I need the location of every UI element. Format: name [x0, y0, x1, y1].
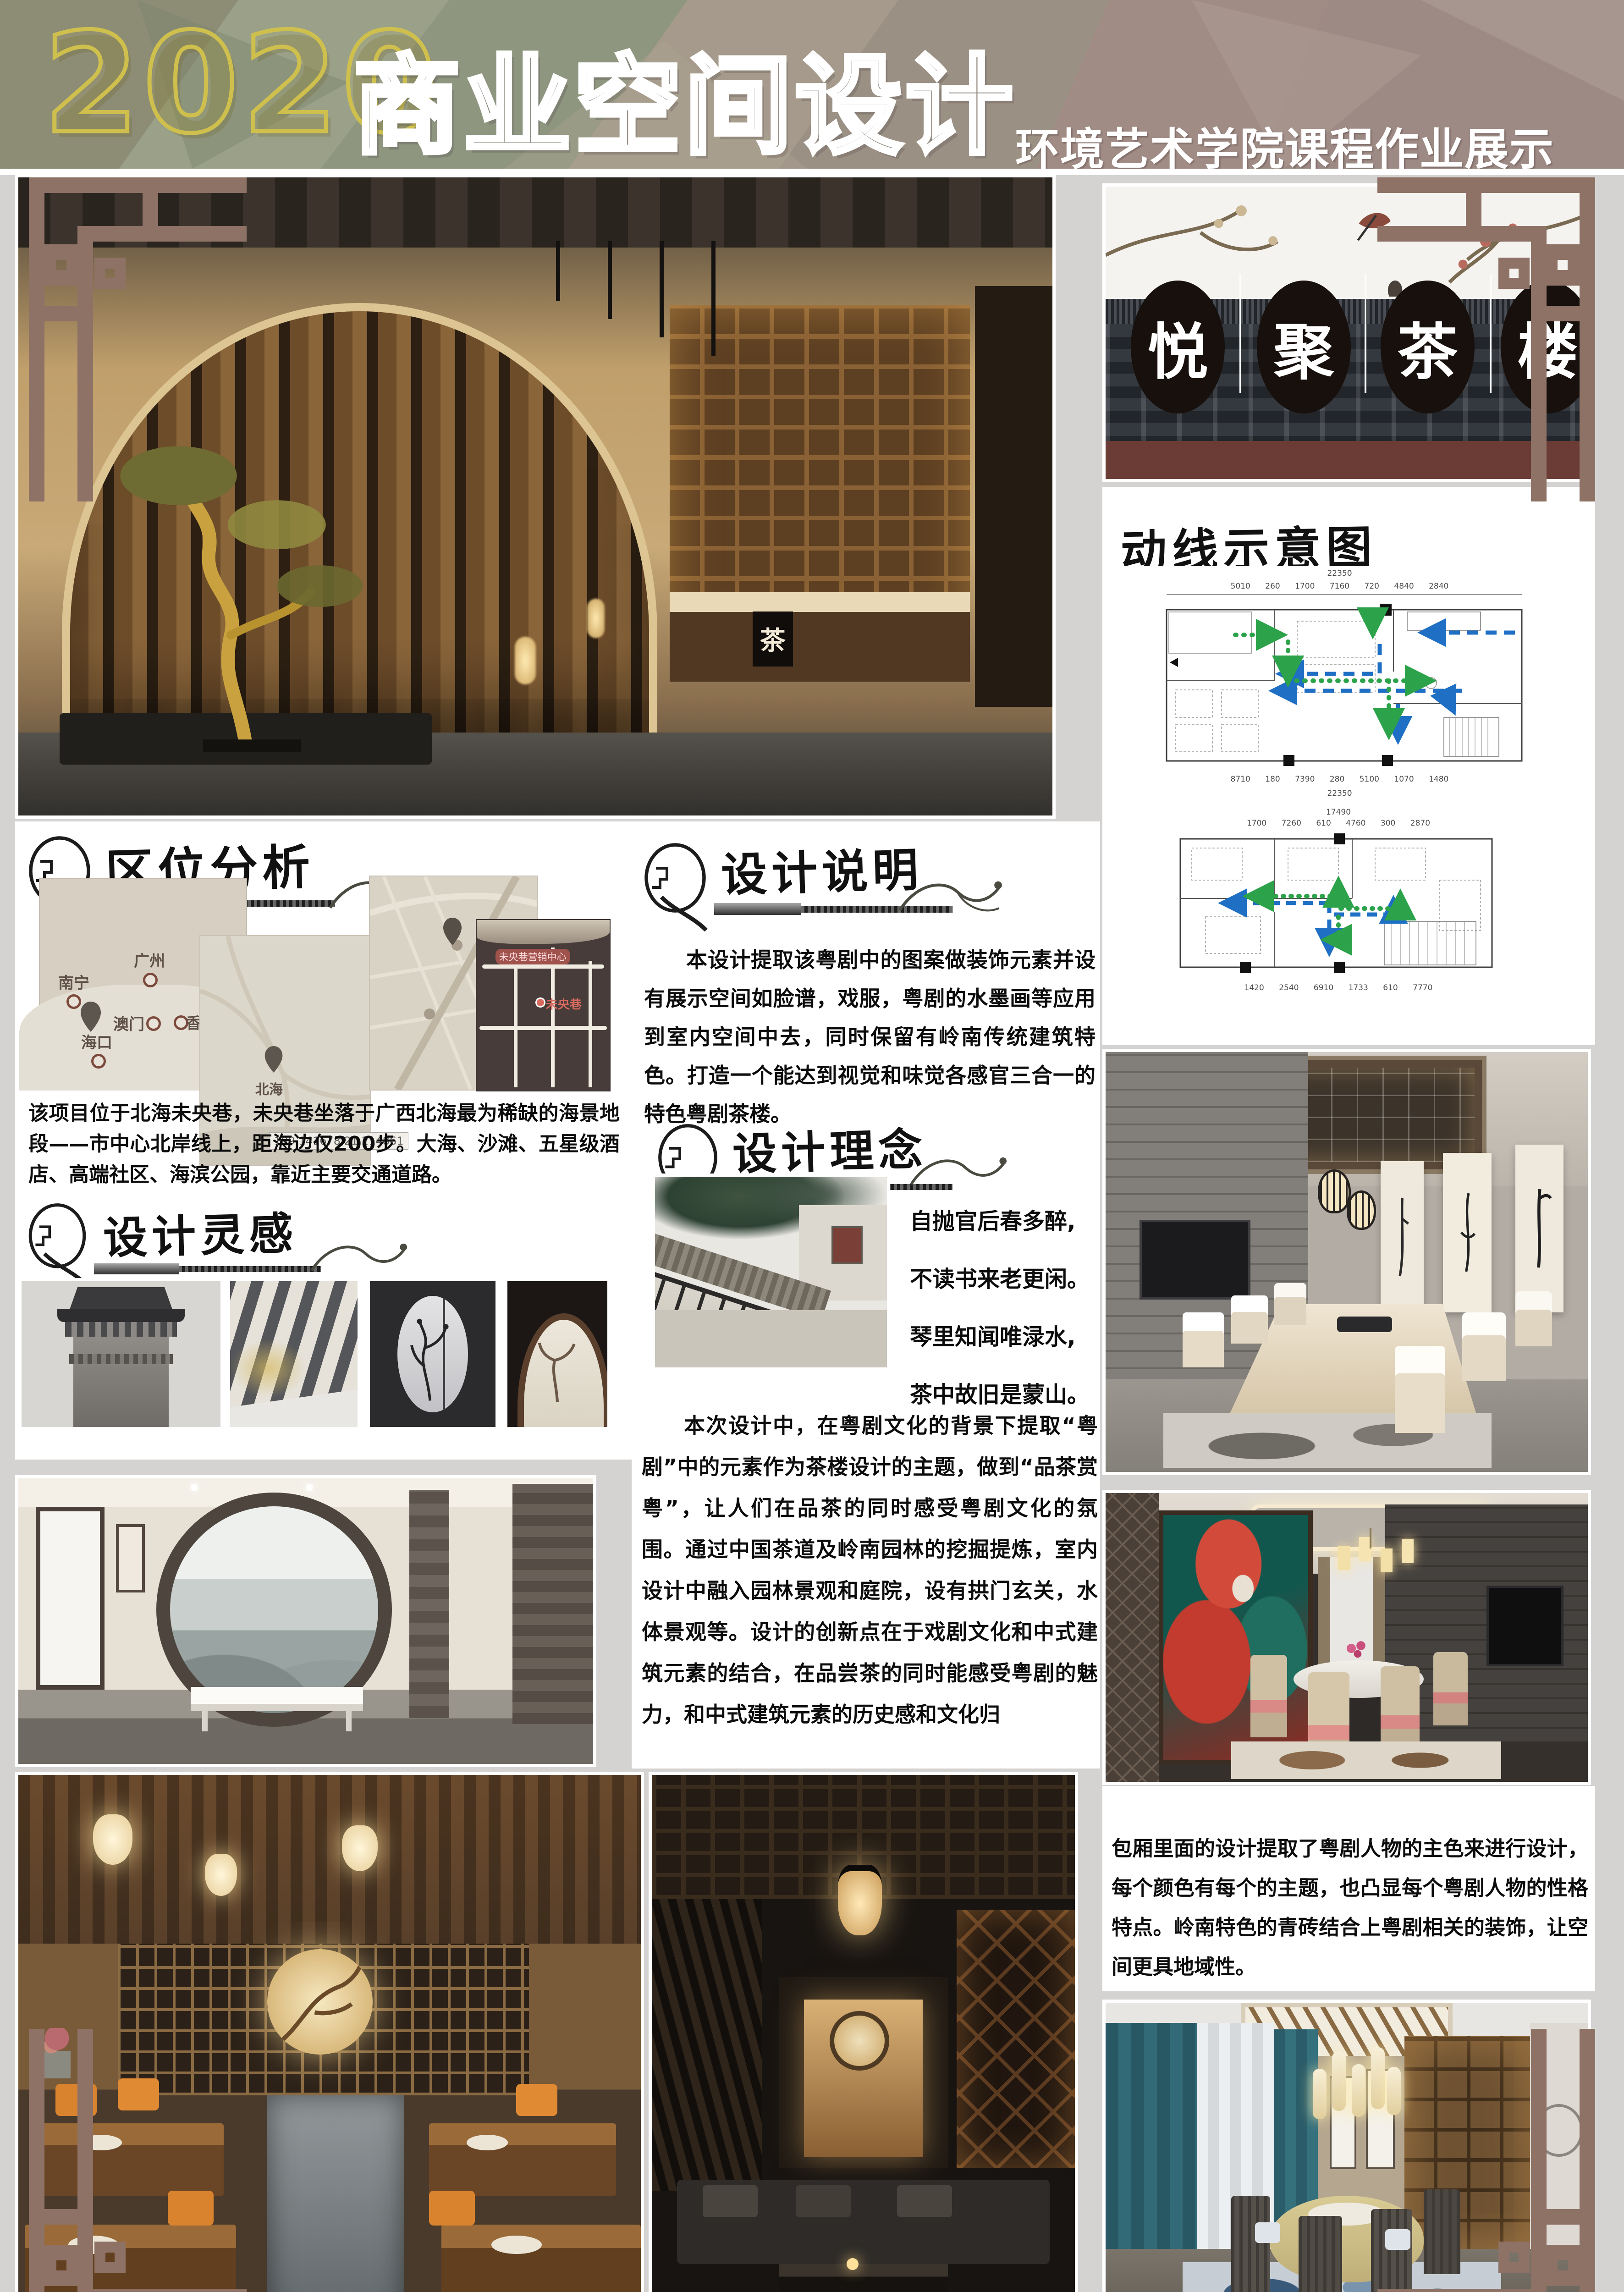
dining-table: [429, 2123, 616, 2196]
chair: [1515, 1291, 1552, 1346]
moon-window-glow: [267, 1949, 373, 2055]
dining-table: [441, 2225, 641, 2292]
hanging-lantern: [93, 1814, 132, 1865]
section-title: 设计说明: [720, 832, 924, 904]
city-label: 南宁: [58, 970, 89, 993]
counter-tea-sign: 茶: [753, 612, 793, 667]
sign-separator: [1239, 274, 1241, 393]
plan1-drawing: [1123, 566, 1556, 802]
hanging-lantern: [838, 1865, 882, 1935]
poem-line: 自抛官后春多醉,: [910, 1203, 1093, 1236]
city-label: 澳门: [113, 1012, 144, 1034]
chandelier: [1327, 1528, 1433, 1574]
road-h: [482, 964, 605, 969]
city-dot: [143, 973, 158, 987]
stair-wall: [655, 1310, 887, 1367]
garden-stairs-photo: [652, 1174, 890, 1371]
side-doorway: [975, 286, 1052, 707]
concept-body: 本次设计中，在粤剧文化的背景下提取“粤剧”中的元素作为茶楼设计的主题，做到“品茶…: [642, 1405, 1098, 1735]
round-window-ring: [830, 2011, 889, 2071]
section-title: 设计理念: [732, 1113, 927, 1182]
tea-set: [1337, 1317, 1392, 1332]
page-subtitle: 环境艺术学院课程作业展示: [1015, 114, 1554, 177]
marker-label: 未央巷营销中心: [495, 949, 570, 964]
poster: 2020 商业空间设计 环境艺术学院课程作业展示 茶: [0, 0, 1624, 2292]
marker-label: 未央巷: [546, 995, 582, 1012]
wall-frame: [116, 1524, 145, 1593]
gable-window: [831, 1226, 863, 1264]
chair: [1395, 1346, 1445, 1433]
sign-char: 悦: [1148, 303, 1208, 391]
moon-arch-room-photo: [15, 1475, 596, 1767]
spindle-chair: [1231, 2196, 1270, 2292]
tv-screen: [1140, 1220, 1250, 1300]
plan1-bottom-dims: 8710 180 7390 280 5100 1070 1480: [1123, 775, 1556, 784]
chair: [1274, 1283, 1306, 1325]
moon-lattice-icon: [25, 1202, 89, 1286]
city-label: 北海: [255, 1078, 283, 1098]
inspiration-gate-photo: [18, 1278, 224, 1430]
inspiration-oval-window-photo: [367, 1278, 499, 1430]
marker-dot: [535, 997, 545, 1008]
flourish-icon: [309, 1239, 408, 1284]
ink-stroke: [1390, 1174, 1415, 1300]
sign-separator: [1365, 274, 1366, 393]
map-pin-icon: [80, 1002, 101, 1032]
section-bar: [714, 903, 801, 915]
city-label: 广州: [134, 948, 165, 971]
corridor-photo: [649, 1772, 1078, 2292]
ink-stroke: [1528, 1157, 1552, 1300]
tea-character: 茶: [760, 620, 786, 657]
blossom-tint: [230, 1339, 307, 1398]
ink-stroke: [1455, 1165, 1480, 1300]
brick-wall-right: [512, 1484, 593, 1724]
poem-line: 琴里知闻唯渌水,: [910, 1319, 1093, 1351]
lantern-glow: [587, 599, 605, 638]
road-v: [589, 961, 592, 1087]
description-body: 本设计提取该粤剧中的图案做装饰元素并设 有展示空间如脸谱，戏服，粤剧的水墨画等应…: [644, 941, 1096, 1133]
ceiling-spot: [191, 1484, 198, 1491]
rug: [1231, 1741, 1501, 1779]
sofa-cushion: [703, 2185, 758, 2217]
lattice-corner-icon: [1377, 171, 1616, 501]
pendant-bar: [660, 241, 664, 337]
spindle-chair: [1299, 2216, 1342, 2292]
inspiration-moon-gate-photo: [504, 1278, 611, 1430]
lattice-corner-icon: [8, 171, 247, 501]
sign-char: 聚: [1274, 303, 1334, 391]
chair-pink: [1250, 1655, 1287, 1737]
road-map-dark: 未央巷营销中心 未央巷: [476, 919, 611, 1091]
floor-plan-1: 22350 5010 260 1700 7160 720 4840 2840: [1123, 566, 1556, 802]
sign-char-tile: 聚: [1257, 281, 1351, 413]
cushion: [429, 2191, 475, 2226]
road-v: [551, 948, 555, 1087]
tv-screen: [1486, 1586, 1563, 1666]
branch-silhouette: [267, 1949, 373, 2055]
concept-poem: 自抛官后春多醉, 不读书来老更闲。 琴里知闻唯渌水, 茶中故旧是蒙山。: [910, 1203, 1093, 1409]
console-table: [191, 1687, 363, 1704]
wallpaper-strip: [1106, 1493, 1159, 1782]
plate: [467, 2135, 508, 2150]
section-bar-dotted: [179, 1266, 321, 1272]
hanging-lantern: [205, 1854, 237, 1896]
grey-brick-tearoom-photo: [1102, 1049, 1591, 1475]
location-body: 该项目位于北海未央巷，未央巷坐落于广西北海最为稀缺的海景地段——市中心北岸线上，…: [28, 1098, 620, 1190]
table-leg: [346, 1704, 352, 1731]
chair: [1462, 1312, 1506, 1381]
birdcage-lamp: [1347, 1190, 1376, 1230]
poem-line: 不读书来老更闲。: [910, 1261, 1093, 1294]
city-dot: [66, 994, 81, 1009]
aisle-floor: [267, 2095, 404, 2292]
pendant-bar: [711, 241, 716, 356]
shoreline: [477, 920, 610, 944]
flourish-icon: [909, 1153, 1007, 1198]
brick-pillar: [409, 1490, 450, 1718]
section-title: 设计灵感: [102, 1197, 298, 1266]
left-slat-wall: [652, 1899, 762, 2191]
road-v: [514, 954, 517, 1087]
plan2-bottom-dims: 1420 2540 6910 1733 610 7770: [1137, 983, 1540, 992]
opera-private-room-photo: [1102, 1490, 1591, 1785]
cushion-blue: [1255, 2222, 1280, 2243]
door-panel: [36, 1507, 105, 1690]
city-dot: [91, 1054, 106, 1069]
lattice-corner-icon: [8, 2029, 247, 2292]
chair-pink: [1433, 1652, 1468, 1725]
counter: [670, 592, 969, 682]
pendant-bar: [608, 241, 612, 319]
opera-mural: [1159, 1510, 1313, 1764]
birdcage-lamp: [1318, 1169, 1351, 1213]
wine-rack: [957, 1910, 1075, 2168]
inspiration-tiles-photo: [227, 1278, 361, 1430]
candle-glow: [847, 2258, 859, 2270]
chair: [1231, 1295, 1268, 1344]
ceiling-spot: [306, 1484, 313, 1491]
plan1-total-bottom: 22350: [1123, 789, 1556, 798]
cushion: [516, 2084, 557, 2116]
flowers: [1342, 1637, 1374, 1665]
city-label: 海口: [81, 1030, 112, 1052]
sign-char-tile: 悦: [1131, 281, 1225, 413]
gate-roof: [69, 1287, 173, 1311]
gate-band: [69, 1354, 173, 1364]
hanging-lantern: [342, 1825, 378, 1871]
section-bar: [94, 1263, 179, 1274]
branch-silhouette: [402, 1316, 458, 1400]
page-title: 商业空间设计: [353, 18, 1016, 175]
floor-plan-2: 17490 1700 7260 610 4760 300 2870: [1137, 807, 1540, 1008]
lattice-corner-icon: [1377, 2029, 1616, 2292]
gate-eave: [57, 1309, 185, 1322]
map-pin-icon: [264, 1046, 283, 1073]
flourish-icon: [897, 876, 1003, 925]
poem-line: 茶中故旧是蒙山。: [910, 1377, 1093, 1409]
moon-lattice-icon: [641, 842, 710, 931]
sofa-cushion: [796, 2185, 851, 2217]
gate-body: [73, 1337, 169, 1427]
road-h: [479, 1026, 607, 1030]
pendant-bar: [556, 241, 560, 301]
chair: [1183, 1312, 1224, 1367]
sofa-cushion: [897, 2185, 952, 2217]
lantern-glow: [515, 637, 536, 684]
city-dot: [146, 1016, 161, 1031]
gate-dentils: [65, 1322, 176, 1337]
table-leg: [202, 1704, 208, 1731]
plan2-drawing: [1137, 807, 1540, 1008]
tree-silhouette: [529, 1331, 585, 1406]
low-table: [779, 2264, 948, 2292]
private-room-note: 包厢里面的设计提取了粤剧人物的主色来进行设计，每个颜色有每个的主题，也凸显每个粤…: [1112, 1829, 1588, 1987]
description-section-header: 设计说明: [641, 835, 1053, 931]
header-band: 2020 商业空间设计 环境艺术学院课程作业展示: [0, 0, 1624, 169]
